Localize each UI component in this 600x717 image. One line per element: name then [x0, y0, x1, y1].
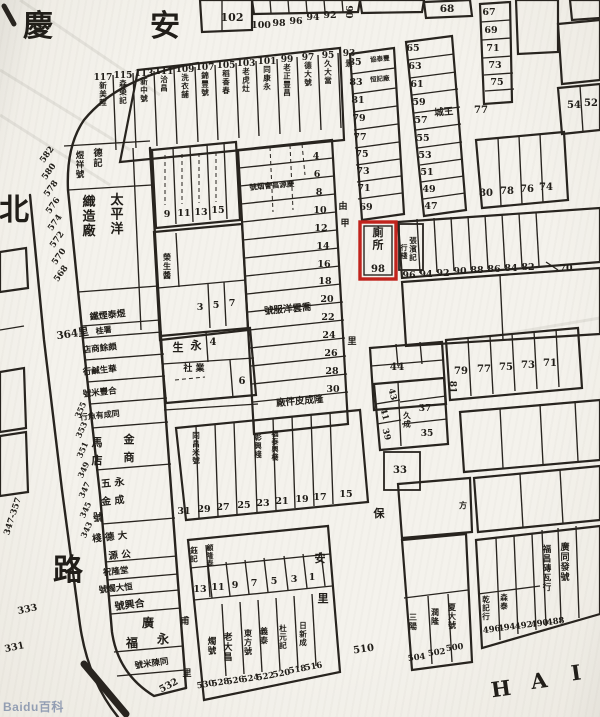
lot-number: 19 — [295, 494, 309, 505]
lot-number: 61 — [410, 79, 423, 90]
lot-divider — [256, 61, 259, 136]
lot-number: 349 — [75, 460, 91, 480]
lot-divider — [90, 398, 167, 404]
shop-label: 新中號 — [140, 76, 148, 103]
lot-number: 14 — [316, 241, 330, 252]
shop-label: 彰興棧 — [254, 432, 262, 459]
lot-number: 1 — [309, 572, 316, 583]
lot-number: 77 — [477, 364, 491, 375]
block-outline — [360, 0, 424, 13]
shop-label: 廠件皮成隆 — [276, 393, 325, 409]
shop-label: 由 — [338, 200, 347, 212]
lot-number: 53 — [418, 150, 431, 161]
shop-label: 顧隆泰 — [206, 543, 215, 568]
lot-divider — [208, 284, 210, 328]
lot-number: 68 — [440, 3, 455, 15]
lot-number: 100 — [251, 20, 271, 31]
lot-number: 51 — [420, 167, 433, 178]
lot-divider — [434, 218, 437, 272]
lot-divider — [102, 518, 175, 524]
shop-label: 福 — [125, 635, 138, 650]
shop-label: 太平洋 — [109, 192, 124, 237]
lot-number: 70 — [559, 263, 573, 274]
lot-number: 29 — [197, 504, 211, 515]
lot-divider — [174, 69, 177, 144]
block-outline — [154, 224, 248, 340]
lot-divider — [451, 217, 454, 271]
lot-number: 102 — [221, 11, 244, 24]
shop-label: 號興合 — [114, 596, 146, 613]
toilet-number: 98 — [371, 264, 385, 275]
lot-divider — [224, 282, 226, 326]
lot-number: 500 — [445, 642, 464, 654]
lot-number: 572 — [48, 230, 66, 250]
lot-number: 9 — [164, 209, 171, 220]
lot-number: 31 — [177, 506, 190, 517]
lot-divider — [485, 215, 488, 269]
shop-label: 號米陳同 — [134, 656, 169, 672]
lot-divider — [264, 558, 268, 592]
lot-divider — [85, 354, 164, 360]
shop-label: 乾記行 — [481, 594, 490, 621]
shop-label: 里 — [347, 336, 356, 347]
lot-number: 516 — [304, 661, 323, 674]
lot-divider — [520, 474, 523, 528]
lot-divider — [482, 38, 511, 40]
lot-number: 9 — [232, 580, 239, 591]
lot-number: 81 — [351, 95, 364, 106]
lot-number: 75 — [499, 362, 513, 373]
shop-label: 城王 — [434, 105, 454, 119]
lot-number: 59 — [412, 97, 426, 108]
lot-divider — [519, 213, 522, 267]
lot-number: 92 — [436, 268, 449, 279]
shop-label: 福泰興棧 — [271, 429, 280, 462]
lot-divider — [576, 526, 579, 618]
lot-number: 86 — [487, 264, 501, 275]
lot-number: 69 — [484, 25, 498, 36]
lot-divider — [575, 401, 578, 461]
shop-label: 森泰 — [499, 592, 508, 610]
shop-label: 老虎灶 — [241, 66, 250, 93]
scan-mark — [84, 664, 126, 714]
lot-divider — [297, 57, 300, 132]
shop-label: 老大昌 — [222, 631, 232, 663]
shop-label: 老正豐昌 — [282, 62, 291, 97]
lot-divider-dashed — [175, 377, 205, 380]
lot-number: 11 — [177, 208, 190, 219]
lot-number: 5 — [271, 576, 278, 587]
shop-label: 商 — [124, 450, 135, 464]
lot-number: 39 — [380, 427, 393, 441]
lot-divider — [303, 554, 307, 588]
lot-number: 6 — [314, 169, 321, 180]
block-outline — [516, 0, 558, 54]
shop-label: 洽昌 — [160, 74, 168, 92]
lot-number: 83 — [349, 77, 362, 88]
lot-number: 494 — [497, 622, 516, 634]
shop-label: 廣同發號 — [559, 541, 570, 583]
lot-number: 576 — [44, 196, 62, 216]
lot-divider — [500, 408, 503, 468]
lot-number: 580 — [40, 162, 58, 182]
shop-label: 協泰豐 — [370, 53, 391, 64]
lot-number: 15 — [339, 489, 352, 500]
shop-label: 同昌米號 — [192, 431, 200, 465]
lot-divider — [206, 332, 208, 362]
lot-number: 331 — [4, 640, 26, 655]
lot-number: 73 — [356, 166, 369, 177]
shop-label: 同康永 — [262, 65, 271, 91]
shop-label: 張濱記 — [409, 236, 417, 262]
lot-divider — [284, 556, 288, 590]
lot-divider — [215, 65, 218, 140]
shop-label: 義泰 — [259, 626, 269, 645]
lot-divider — [481, 20, 510, 22]
shop-label: 號烟會昌源慶 — [249, 178, 295, 192]
lot-divider — [484, 73, 513, 75]
lot-divider — [318, 55, 321, 130]
shop-label: 號燭大恒 — [98, 581, 133, 596]
lot-number: 26 — [324, 348, 338, 359]
lot-number: 79 — [352, 113, 366, 124]
lot-number: 27 — [216, 502, 229, 513]
lot-divider — [68, 185, 152, 190]
shop-label: 稻香春 — [221, 68, 230, 95]
lot-number: 69 — [359, 202, 373, 213]
lot-number: 90 — [343, 5, 354, 19]
shop-label: 號服洋雲喬 — [264, 301, 313, 317]
block-outline — [0, 368, 26, 432]
lot-number: 43 — [386, 387, 399, 401]
lot-number: 96 — [289, 16, 303, 27]
lot-number: 502 — [427, 647, 446, 659]
lot-number: 47 — [424, 201, 437, 212]
block-outline — [0, 432, 28, 496]
lot-divider — [173, 148, 176, 224]
shop-label: 馬 — [92, 436, 103, 449]
scan-mark — [4, 6, 14, 24]
street-name-hai: A — [528, 667, 549, 694]
lot-number: 35 — [421, 429, 434, 439]
lot-number: 3 — [291, 574, 298, 585]
lot-number: 510 — [353, 643, 375, 657]
shop-label: 錦豐號 — [200, 70, 209, 97]
shop-label: 里 — [182, 668, 191, 679]
lot-divider — [133, 148, 141, 330]
block-outline — [474, 466, 600, 532]
lot-divider — [87, 376, 165, 382]
lot-number: 54 — [567, 100, 581, 111]
lot-number: 71 — [543, 358, 557, 369]
shop-label: 森榮記 — [119, 78, 127, 105]
shop-label: 安 — [315, 551, 326, 565]
lot-divider — [404, 590, 468, 598]
lot-divider — [468, 216, 471, 270]
street-name-char: 路 — [53, 553, 84, 588]
lot-divider — [114, 646, 183, 652]
lot-number: 80 — [479, 188, 493, 199]
lot-number: 49 — [422, 184, 436, 195]
lot-number: 333 — [17, 602, 39, 617]
lot-divider — [500, 275, 503, 340]
shop-label: 行棧 — [400, 243, 408, 260]
lot-number: 13 — [194, 207, 207, 218]
lot-divider — [478, 586, 540, 594]
lot-number: 4 — [313, 151, 320, 162]
lot-divider — [398, 382, 401, 446]
lot-number: 570 — [50, 247, 68, 267]
lot-number: 71 — [357, 183, 370, 194]
lot-number: 23 — [256, 498, 269, 509]
shop-label: 潤隆 — [431, 607, 440, 626]
lot-divider — [485, 89, 514, 91]
shop-label: 棧 德 大 — [92, 529, 129, 545]
lot-number: 78 — [500, 186, 514, 197]
shop-label: 煜祥號 — [76, 150, 85, 180]
lot-number: 18 — [318, 276, 332, 287]
lot-divider — [417, 219, 420, 273]
lot-number: 85 — [348, 57, 361, 68]
lot-divider — [483, 56, 512, 58]
lot-divider — [288, 0, 289, 13]
lot-divider — [294, 596, 298, 668]
lot-number: 88 — [470, 265, 484, 276]
shop-label: 甫 — [180, 615, 189, 627]
block-outline — [558, 20, 600, 84]
lot-divider — [342, 0, 343, 12]
lot-number: 52 — [584, 98, 598, 109]
lot-number: 21 — [275, 496, 288, 507]
shop-label: 里 — [318, 592, 329, 605]
lot-number: 504 — [407, 652, 426, 664]
shop-label: 久成 — [402, 410, 411, 428]
street-name-hai: H — [489, 675, 512, 703]
lot-number: 3 — [197, 302, 204, 313]
lot-number: 55 — [416, 133, 429, 144]
lot-divider — [270, 0, 271, 13]
lot-divider — [354, 124, 398, 130]
lot-number: 347-357 — [2, 496, 24, 536]
lot-number: 79 — [454, 366, 468, 377]
lot-divider — [92, 422, 168, 428]
shop-label: 德大號 — [304, 60, 312, 87]
lot-divider — [96, 464, 171, 470]
street-name-char: 慶 — [23, 9, 53, 44]
lot-number: 8 — [316, 187, 323, 198]
lot-number: 28 — [325, 366, 339, 377]
shop-label: 永 — [190, 338, 203, 352]
lot-divider — [400, 396, 446, 402]
scanned-map-page: 1021009896949290686769717375775452117115… — [0, 0, 600, 717]
lot-number: 57 — [414, 115, 427, 126]
watermark: Baidu百科 — [3, 698, 64, 715]
lot-number: 568 — [52, 264, 70, 284]
shop-label: 五 永 — [100, 475, 126, 490]
block-outline — [570, 0, 600, 20]
shop-label: 燭號 — [208, 636, 217, 657]
lot-number: 22 — [321, 312, 334, 323]
lot-number: 20 — [320, 294, 334, 305]
lot-divider — [353, 106, 397, 112]
lot-number: 6 — [239, 376, 246, 387]
lot-number: 24 — [322, 330, 336, 341]
shop-label: 榮生醬 — [163, 252, 171, 280]
lot-divider — [306, 0, 307, 12]
lot-divider — [226, 562, 230, 596]
shop-label: 日新成 — [299, 621, 307, 647]
lot-number: 73 — [521, 360, 535, 371]
lot-divider — [0, 326, 24, 330]
lot-number: 345 — [77, 500, 93, 519]
lot-number: 16 — [317, 259, 331, 270]
lot-divider — [536, 212, 539, 266]
block-outline — [460, 400, 600, 472]
shop-label: 生 — [173, 340, 184, 354]
lot-number: 7 — [251, 578, 258, 589]
lot-number: 63 — [408, 61, 421, 72]
lot-divider-dashed — [290, 145, 293, 210]
lot-number: 12 — [314, 223, 327, 234]
shop-label: 鐵煙泰煜 — [89, 307, 126, 323]
shop-label: 恒記廠 — [370, 73, 391, 84]
lot-divider — [532, 534, 536, 630]
shop-label: 方 — [459, 500, 467, 510]
lot-divider — [230, 360, 233, 398]
shop-label: 金 — [123, 432, 136, 446]
lot-number: 41 — [378, 407, 391, 421]
shop-label: 夏大號 — [447, 602, 457, 630]
street-name-char: 安 — [150, 9, 180, 44]
lot-divider — [312, 594, 316, 666]
lot-divider — [277, 59, 280, 134]
lot-divider — [371, 360, 443, 366]
lot-number: 75 — [355, 149, 368, 160]
shop-label: 新美陞 — [99, 80, 107, 107]
lot-divider — [540, 404, 543, 464]
lot-divider-dashed — [270, 147, 273, 212]
shop-label: 店 — [92, 453, 103, 467]
lot-divider — [410, 72, 456, 78]
lot-number: 73 — [488, 60, 501, 71]
lot-number: 77 — [353, 132, 366, 143]
lot-number: 351 — [74, 440, 90, 459]
lot-divider — [83, 332, 162, 338]
lot-divider — [176, 233, 179, 287]
lot-divider — [468, 338, 471, 396]
shop-label: 金 成 — [99, 493, 125, 508]
lot-number: 94 — [306, 12, 320, 23]
lot-number: 574 — [46, 213, 64, 233]
lot-number: 44 — [390, 361, 405, 373]
lot-number: 98 — [272, 18, 286, 29]
shop-label: 洗衣舖 — [181, 72, 189, 99]
lot-divider — [164, 404, 258, 410]
shop-label: 織造廠 — [82, 194, 96, 239]
lot-number: 81 — [447, 381, 457, 394]
shop-label: 東方號 — [244, 628, 252, 656]
shop-label: 永 — [156, 631, 169, 646]
lot-divider — [408, 54, 454, 60]
lot-number: 76 — [520, 184, 534, 195]
lot-number: 33 — [393, 465, 407, 476]
lot-number: 15 — [211, 205, 224, 216]
shop-label: 杜元記 — [279, 623, 287, 650]
map-canvas: 1021009896949290686769717375775452117115… — [0, 0, 600, 717]
lot-divider-dashed — [302, 144, 305, 175]
lot-number: 77 — [474, 105, 488, 116]
shop-label: 鈺記 — [189, 545, 198, 563]
lot-divider — [245, 560, 249, 594]
shop-label: 保 — [373, 506, 386, 520]
shop-label: 364里 — [56, 326, 90, 342]
shop-label: 德記 — [93, 147, 102, 169]
lot-number: 11 — [211, 582, 224, 593]
lot-number: 82 — [521, 262, 534, 273]
shop-label: 甲 — [340, 218, 349, 229]
lot-divider — [514, 536, 518, 634]
shop-label: 三陽 — [409, 612, 417, 631]
lot-number: 94 — [419, 269, 433, 280]
block-outline — [370, 342, 446, 410]
lot-divider — [154, 71, 157, 146]
lot-number: 96 — [402, 270, 416, 281]
lot-number: 65 — [406, 43, 419, 54]
lot-number: 90 — [453, 266, 467, 277]
lot-divider — [64, 141, 150, 146]
lot-number: 74 — [539, 182, 553, 193]
lot-number: 67 — [482, 7, 495, 18]
lot-number: 353 — [73, 420, 89, 440]
shop-label: 桂署 — [94, 324, 112, 336]
shop-label: 福昌磚瓦行 — [542, 544, 552, 593]
lot-divider — [236, 63, 239, 138]
lot-number: 25 — [237, 500, 250, 511]
lot-number: 5 — [213, 300, 220, 311]
shop-label: 社 業 — [182, 362, 205, 374]
shop-label: 店商餘頗 — [81, 341, 117, 356]
street-name-hai: I — [569, 660, 582, 686]
lot-number: 30 — [326, 384, 340, 395]
lot-number: 84 — [504, 263, 518, 274]
lot-divider — [560, 470, 563, 524]
lot-divider — [352, 88, 396, 94]
lot-divider — [502, 214, 505, 268]
lot-number: 92 — [323, 10, 336, 21]
block-outline — [0, 248, 28, 292]
lot-number: 75 — [490, 77, 503, 88]
lot-number: 10 — [313, 205, 327, 216]
shop-label: 號 — [93, 511, 103, 524]
street-name-char: 北 — [0, 193, 29, 228]
lot-divider — [376, 400, 400, 404]
lot-divider — [78, 286, 158, 292]
lot-number: 347 — [76, 480, 92, 499]
lot-number: 4 — [210, 337, 217, 348]
lot-number: 17 — [313, 492, 326, 503]
shop-label: 久大當 — [323, 58, 332, 85]
lot-number: 71 — [486, 43, 499, 54]
toilet-label: 廁所 — [373, 225, 384, 251]
lot-number: 13 — [193, 584, 206, 595]
lot-number: 37 — [419, 404, 432, 414]
lot-divider — [158, 280, 246, 288]
shop-label: 廣 — [142, 615, 154, 630]
lot-divider — [351, 68, 395, 74]
shop-label: 源 公 — [108, 548, 132, 562]
lot-divider — [195, 67, 198, 142]
lot-number: 7 — [229, 298, 236, 309]
